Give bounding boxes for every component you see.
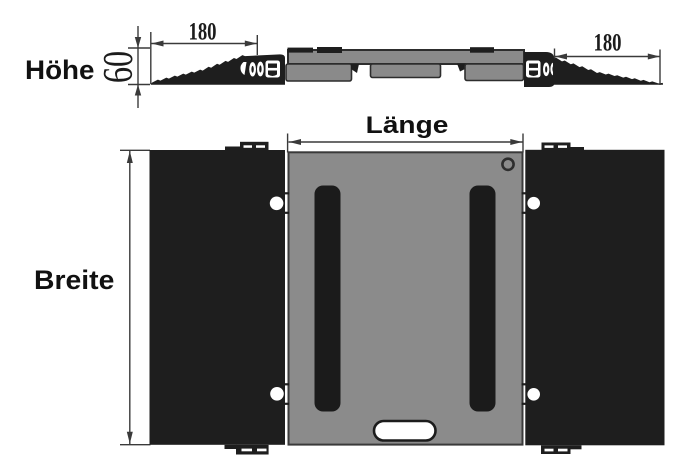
svg-text:Breite: Breite <box>34 265 114 295</box>
svg-text:60: 60 <box>96 51 142 83</box>
svg-text:180: 180 <box>188 17 216 45</box>
svg-text:Höhe: Höhe <box>25 54 94 85</box>
svg-text:180: 180 <box>593 28 621 56</box>
svg-text:Länge: Länge <box>366 111 449 139</box>
